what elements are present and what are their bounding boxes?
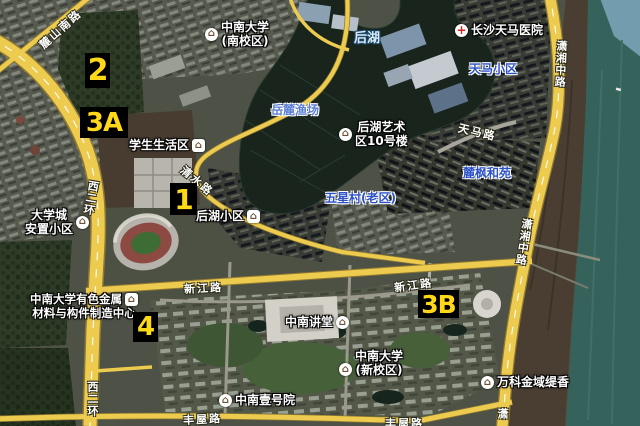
poi-label-student-living-area[interactable]: 学生生活区 bbox=[129, 139, 205, 152]
building-icon bbox=[339, 128, 352, 141]
poi-text: 安置小区 bbox=[25, 223, 73, 236]
map-viewport[interactable]: 中南大学 (南校区) 长沙天马医院 学生生活区 后湖艺术 区10号楼 大学城 安… bbox=[0, 0, 640, 426]
road-label-west-2nd-ring-lower: 西二环 bbox=[87, 381, 98, 420]
poi-text: 区10号楼 bbox=[355, 135, 408, 148]
callout-marker-3a: 3A bbox=[80, 107, 128, 138]
poi-text: 万科金域缇香 bbox=[497, 376, 569, 389]
house-icon bbox=[247, 210, 260, 223]
road-label-fengwu-rd-east: 丰屋路 bbox=[385, 414, 424, 426]
poi-label-zhongnan-lecture-hall[interactable]: 中南讲堂 bbox=[285, 316, 349, 329]
poi-text: 长沙天马医院 bbox=[471, 24, 543, 37]
area-label-wuxing-village: 五星村(老区) bbox=[325, 189, 396, 206]
poi-text: (南校区) bbox=[222, 35, 269, 48]
poi-label-zhongnan-university-south[interactable]: 中南大学 (南校区) bbox=[205, 21, 269, 47]
university-icon bbox=[205, 28, 218, 41]
road-label-xiaoxiang-middle-rd-upper: 潇湘中路 bbox=[554, 40, 568, 92]
poi-text: 后湖艺术 bbox=[357, 121, 405, 134]
callout-marker-3b: 3B bbox=[418, 290, 459, 318]
road-label-xiaoxiang-partial: 潇 bbox=[497, 407, 508, 423]
road-label-fengwu-rd-west: 丰屋路 bbox=[183, 409, 223, 426]
factory-icon bbox=[125, 293, 138, 306]
poi-label-vanke-jinyu[interactable]: 万科金域缇香 bbox=[481, 376, 569, 389]
hospital-cross-icon bbox=[455, 24, 468, 37]
building-icon bbox=[336, 316, 349, 329]
area-label-yuelu-fishery: 岳麓渔场 bbox=[271, 101, 319, 118]
poi-text: (新校区) bbox=[356, 364, 403, 377]
area-label-lufeng-heyuan: 麓枫和苑 bbox=[463, 164, 511, 181]
poi-text: 大学城 bbox=[31, 209, 67, 222]
poi-text: 中南壹号院 bbox=[235, 394, 295, 407]
area-label-houhu-lake: 后湖 bbox=[354, 29, 380, 46]
road-label-xinjiang-rd-west: 新江路 bbox=[184, 278, 224, 297]
poi-text: 材料与构件制造中心 bbox=[32, 307, 136, 319]
poi-text: 后湖小区 bbox=[196, 210, 244, 223]
building-icon bbox=[219, 394, 232, 407]
poi-text: 中南大学有色金属 bbox=[30, 293, 122, 305]
poi-text: 中南讲堂 bbox=[285, 316, 333, 329]
poi-label-tianma-hospital[interactable]: 长沙天马医院 bbox=[455, 24, 543, 37]
university-icon bbox=[339, 363, 352, 376]
poi-label-houhu-art-district[interactable]: 后湖艺术 区10号楼 bbox=[339, 121, 408, 147]
poi-label-daxuecheng-resettlement[interactable]: 大学城 安置小区 bbox=[25, 209, 89, 235]
house-icon bbox=[192, 139, 205, 152]
callout-marker-1: 1 bbox=[170, 183, 197, 215]
house-icon bbox=[481, 376, 494, 389]
area-label-tianma-xiaoqu: 天马小区 bbox=[469, 60, 517, 77]
callout-marker-4: 4 bbox=[133, 312, 158, 342]
poi-label-zhongnan-university-new[interactable]: 中南大学 (新校区) bbox=[339, 350, 403, 376]
poi-label-zhongnan-yihaoyuan[interactable]: 中南壹号院 bbox=[219, 394, 295, 407]
poi-text: 中南大学 bbox=[221, 21, 269, 34]
poi-text: 中南大学 bbox=[355, 350, 403, 363]
poi-label-houhu-xiaoqu[interactable]: 后湖小区 bbox=[196, 210, 260, 223]
callout-marker-2: 2 bbox=[85, 53, 110, 88]
poi-text: 学生生活区 bbox=[129, 139, 189, 152]
poi-label-nonferrous-center[interactable]: 中南大学有色金属 材料与构件制造中心 bbox=[30, 293, 138, 319]
